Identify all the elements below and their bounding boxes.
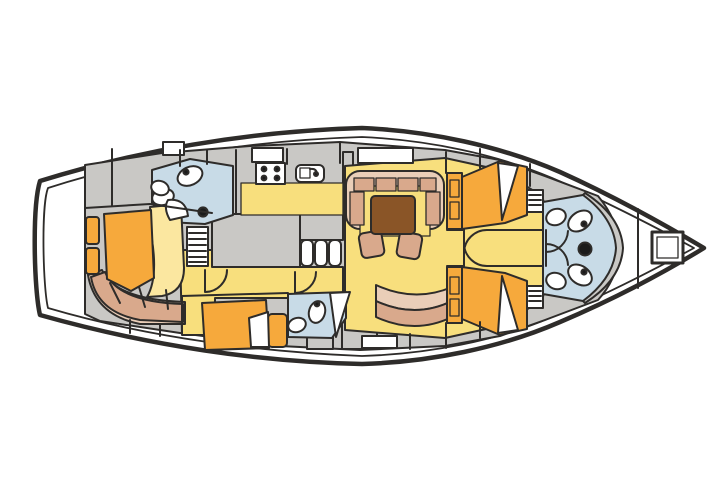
companionway-step: [315, 240, 327, 266]
galley-lower-counter: [212, 214, 300, 267]
toilet-flush-dot: [581, 269, 586, 274]
stove-burner: [275, 176, 280, 181]
stove-burner: [275, 167, 280, 172]
settee-cushion: [398, 178, 418, 191]
mid-berth-sheet-fold: [249, 312, 269, 347]
settee-cushion: [420, 178, 436, 191]
stove-burner: [262, 167, 267, 172]
companionway-step: [329, 240, 341, 266]
steps-platform: [300, 214, 343, 240]
salon-chair: [396, 231, 423, 260]
deck-hatch: [362, 336, 397, 348]
mast-post: [579, 243, 592, 256]
settee-cushion: [376, 178, 396, 191]
toilet-flush-dot: [183, 169, 188, 174]
settee-arm-cushion: [350, 192, 364, 225]
tables: [371, 196, 415, 234]
aft-cabin-shelf: [86, 217, 99, 244]
toilet-flush-dot: [581, 221, 586, 226]
galley-floor: [241, 183, 343, 215]
fwd-shelf-unit-port: [447, 267, 462, 323]
stove-burner: [262, 176, 267, 181]
settee-cushion: [354, 178, 374, 191]
aft-berth-mattress: [104, 210, 154, 291]
fwd-shelf-unit-starboard: [447, 173, 462, 229]
toilet-flush-dot: [315, 302, 320, 307]
boat-layout-diagram: [0, 0, 727, 500]
mid-cabin-side-table: [268, 314, 287, 347]
deck-hatch: [358, 148, 413, 163]
galley-stove: [256, 163, 285, 184]
aft-cabin-shelf: [86, 248, 99, 274]
yacht-plan-svg: [0, 0, 727, 500]
companionway-step: [301, 240, 313, 266]
settee-arm-cushion: [426, 192, 440, 225]
deck-hatch: [252, 148, 283, 162]
salon-table: [371, 196, 415, 234]
galley-sink-basin: [300, 168, 310, 178]
